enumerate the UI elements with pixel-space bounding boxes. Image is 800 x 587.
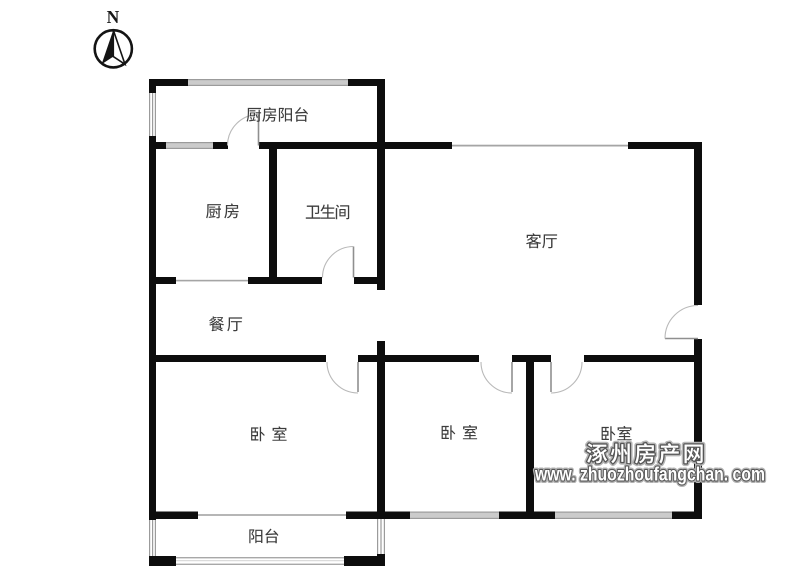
svg-text:N: N — [107, 7, 120, 27]
svg-text:www. zhuozhoufangchan. com: www. zhuozhoufangchan. com — [534, 465, 765, 486]
